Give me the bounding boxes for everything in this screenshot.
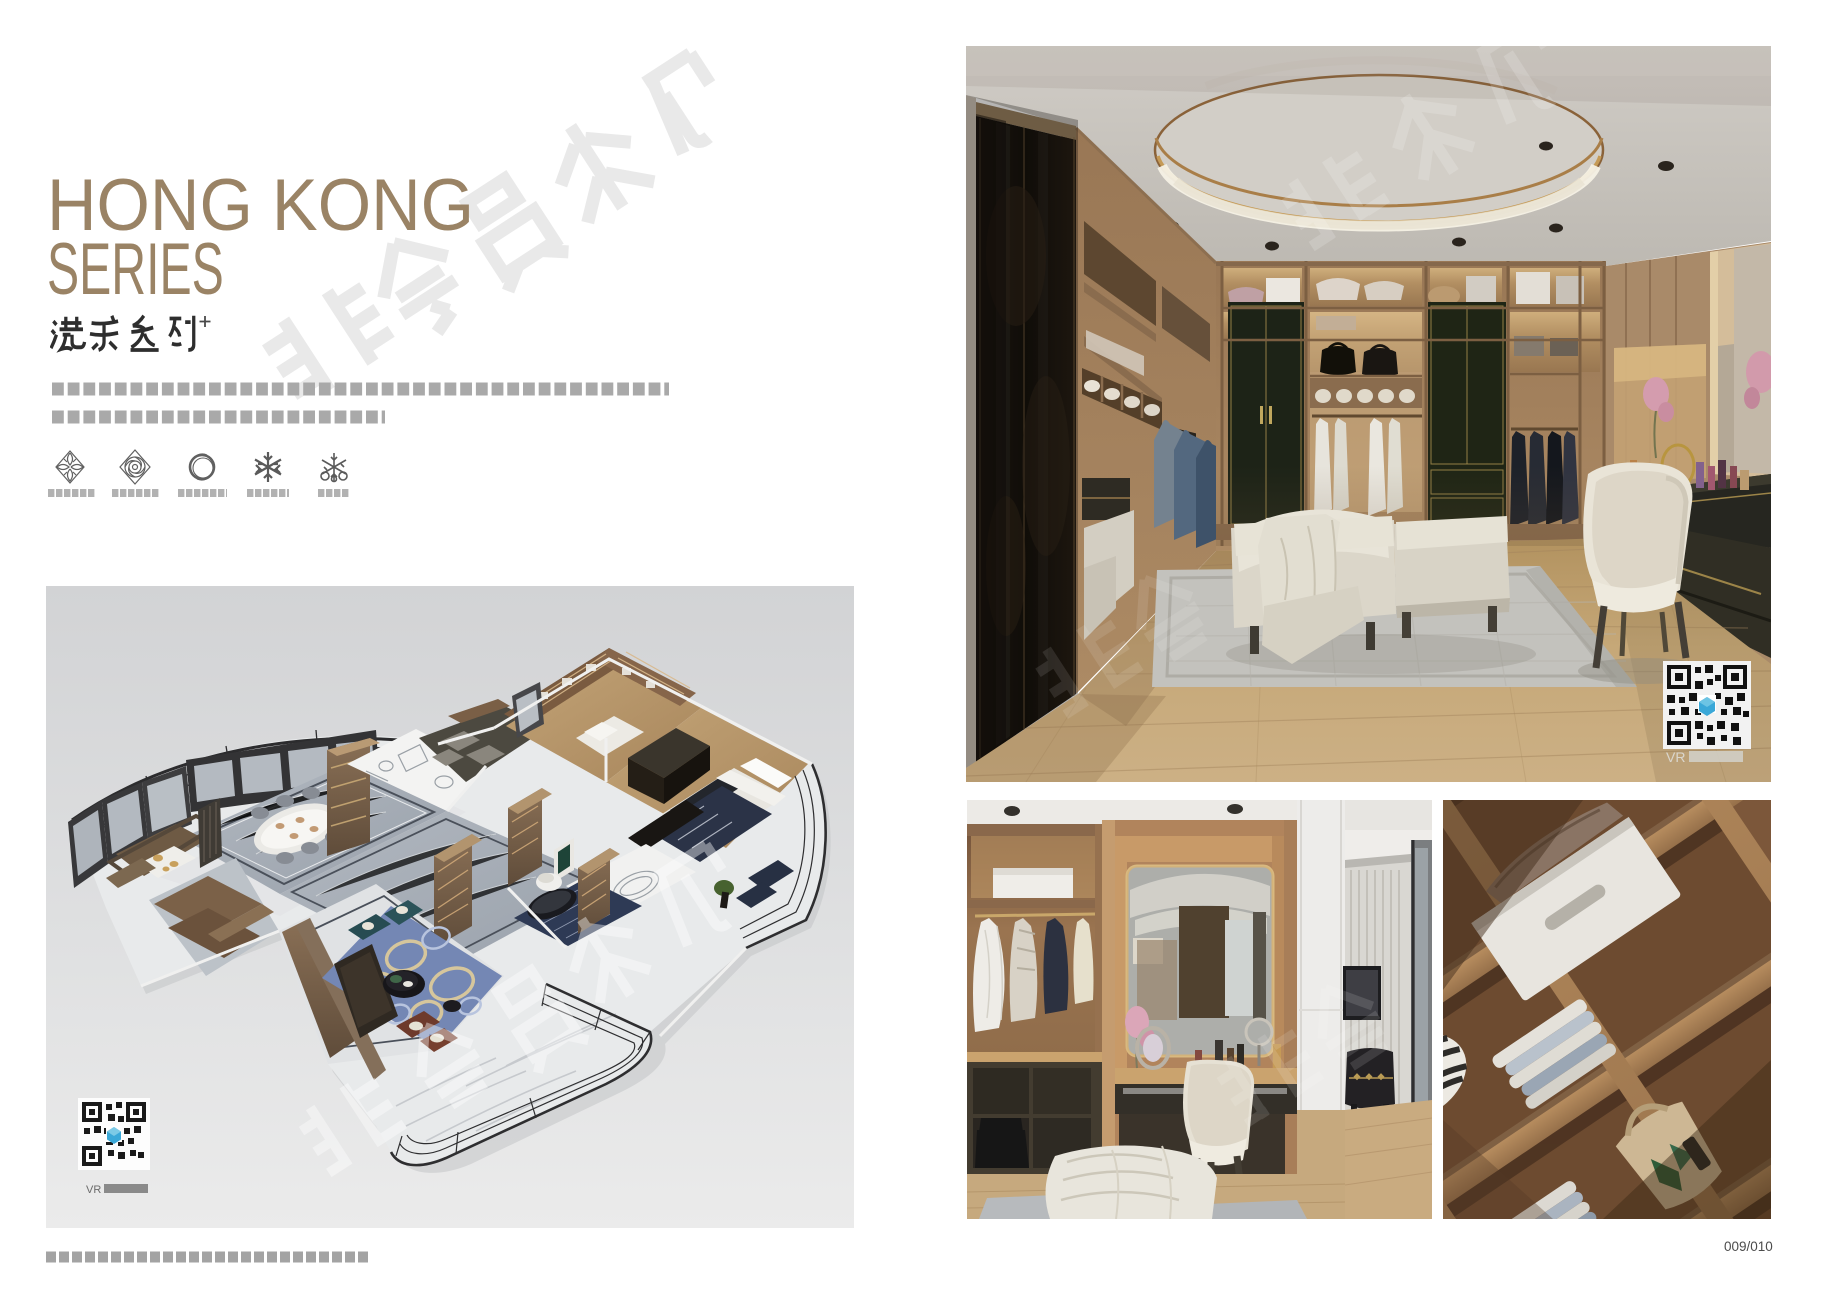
svg-text:VR: VR <box>1666 749 1685 765</box>
svg-text:VR: VR <box>86 1184 101 1196</box>
